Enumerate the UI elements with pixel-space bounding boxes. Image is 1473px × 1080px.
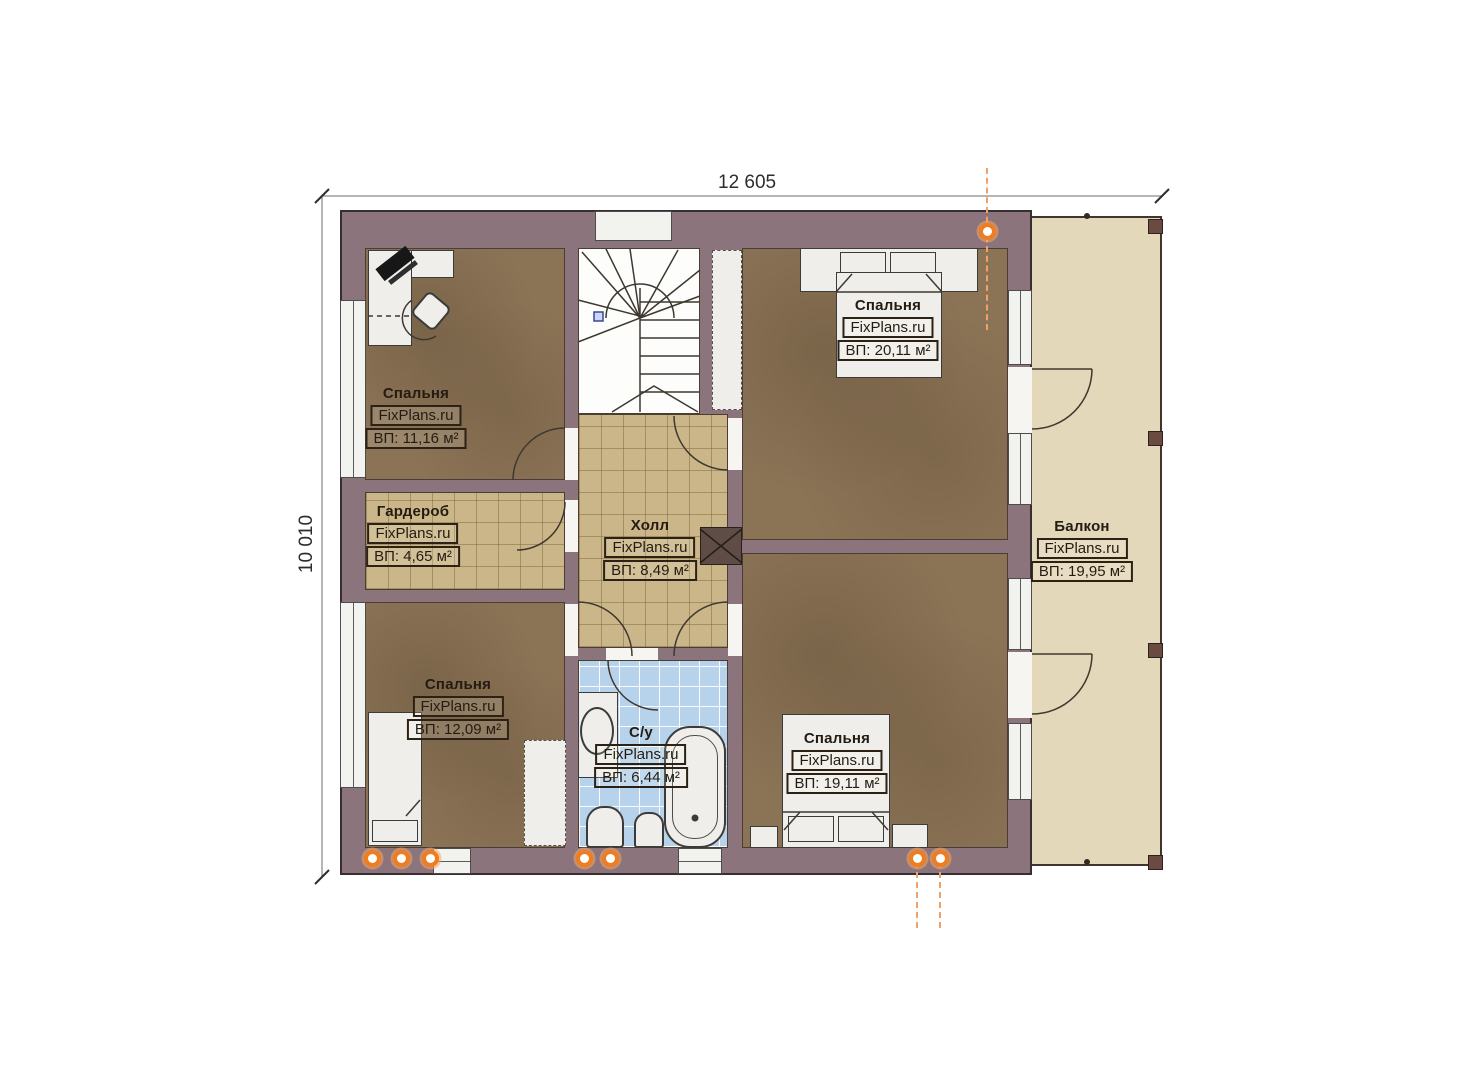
balcony-post xyxy=(1148,643,1163,658)
bidet xyxy=(634,812,664,848)
label-bedroom-top-right: Спальня FixPlans.ru ВП: 20,11 м² xyxy=(837,297,938,361)
label-balcony: Балкон FixPlans.ru ВП: 19,95 м² xyxy=(1031,518,1133,582)
utility-marker xyxy=(393,850,410,867)
pillow xyxy=(838,816,884,842)
axis-dashed-line xyxy=(986,168,988,330)
balcony-post xyxy=(1148,431,1163,446)
balcony-edge-dot xyxy=(1084,213,1090,219)
watermark: FixPlans.ru xyxy=(604,537,695,558)
pillow xyxy=(372,820,418,842)
watermark: FixPlans.ru xyxy=(367,523,458,544)
dimension-width-label: 12 605 xyxy=(718,172,776,194)
closet xyxy=(712,250,742,410)
stairwell xyxy=(578,248,700,414)
window xyxy=(1008,578,1032,650)
balcony-post xyxy=(1148,219,1163,234)
utility-marker xyxy=(422,850,439,867)
window xyxy=(340,602,366,788)
utility-marker xyxy=(909,850,926,867)
pillow xyxy=(788,816,834,842)
utility-marker xyxy=(364,850,381,867)
window xyxy=(1008,723,1032,800)
label-wardrobe: Гардероб FixPlans.ru ВП: 4,65 м² xyxy=(366,503,460,567)
door-opening xyxy=(565,604,578,656)
door-opening xyxy=(728,604,742,656)
dimension-height-label: 10 010 xyxy=(296,515,318,573)
watermark: FixPlans.ru xyxy=(1036,538,1127,559)
watermark: FixPlans.ru xyxy=(412,696,503,717)
label-bedroom-bottom-left: Спальня FixPlans.ru ВП: 12,09 м² xyxy=(407,676,509,740)
door-opening-balcony xyxy=(1008,652,1032,718)
floor-plan: 12 605 10 010 Спальня FixPlans.ru ВП: 11… xyxy=(0,0,1473,1080)
closet xyxy=(524,740,566,846)
watermark: FixPlans.ru xyxy=(595,744,686,765)
label-bedroom-bottom-right: Спальня FixPlans.ru ВП: 19,11 м² xyxy=(786,730,887,794)
label-hall: Холл FixPlans.ru ВП: 8,49 м² xyxy=(603,517,697,581)
utility-marker xyxy=(576,850,593,867)
door-opening-balcony xyxy=(1008,367,1032,433)
toilet xyxy=(586,806,624,848)
balcony-edge-dot xyxy=(1084,859,1090,865)
wall-niche xyxy=(595,211,672,241)
utility-marker xyxy=(979,223,996,240)
vent-shaft xyxy=(700,527,742,565)
bench xyxy=(892,824,928,848)
watermark: FixPlans.ru xyxy=(791,750,882,771)
door-opening xyxy=(565,428,578,480)
utility-marker xyxy=(602,850,619,867)
label-bathroom: С/у FixPlans.ru ВП: 6,44 м² xyxy=(594,724,688,788)
window xyxy=(340,300,366,478)
window xyxy=(433,848,471,874)
window xyxy=(1008,433,1032,505)
window xyxy=(1008,290,1032,365)
window xyxy=(678,848,722,874)
door-opening xyxy=(565,500,578,552)
label-bedroom-top-left: Спальня FixPlans.ru ВП: 11,16 м² xyxy=(365,385,466,449)
watermark: FixPlans.ru xyxy=(370,405,461,426)
door-opening xyxy=(606,648,658,660)
door-opening xyxy=(728,418,742,470)
balcony-post xyxy=(1148,855,1163,870)
watermark: FixPlans.ru xyxy=(842,317,933,338)
utility-marker xyxy=(932,850,949,867)
nightstand xyxy=(750,826,778,848)
